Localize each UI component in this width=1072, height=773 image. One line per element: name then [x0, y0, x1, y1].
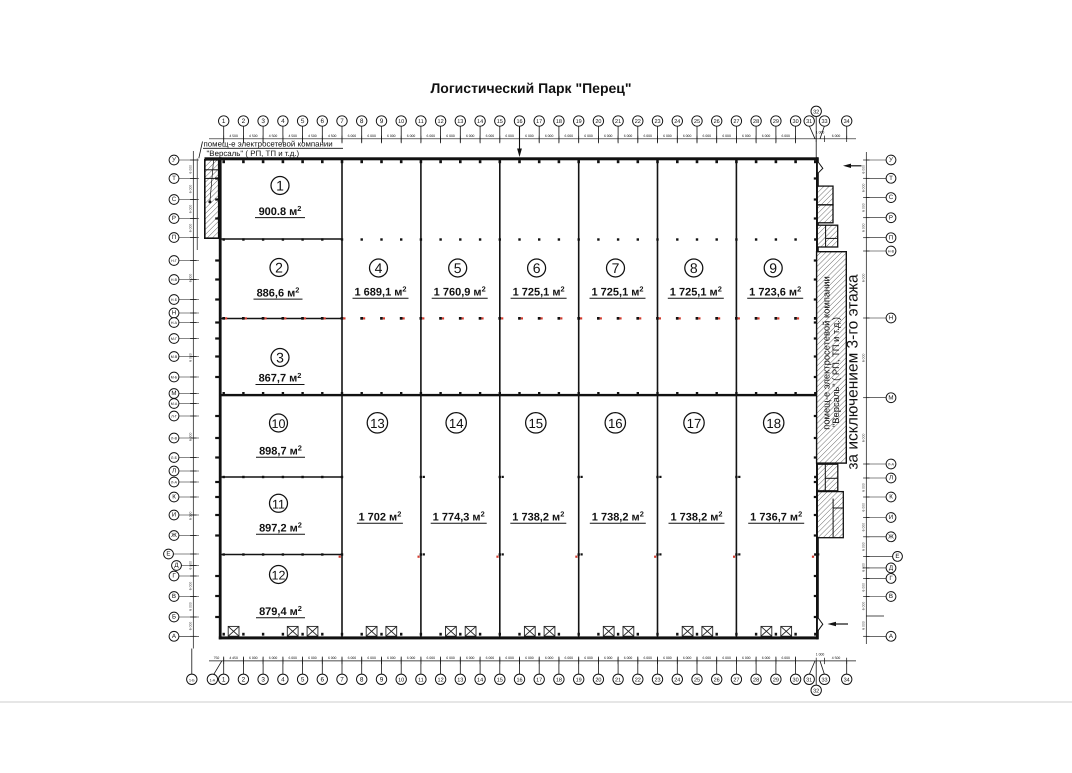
svg-text:7: 7	[612, 260, 620, 276]
svg-text:Л-Б: Л-Б	[171, 456, 178, 460]
svg-text:11: 11	[418, 677, 424, 683]
svg-text:6 000: 6 000	[683, 656, 692, 660]
svg-text:24: 24	[674, 677, 680, 683]
svg-text:6 000: 6 000	[188, 274, 192, 283]
svg-text:1 736,7 м2: 1 736,7 м2	[750, 510, 802, 524]
svg-text:6 000: 6 000	[861, 523, 865, 532]
svg-text:9: 9	[380, 676, 384, 683]
svg-text:6 000: 6 000	[505, 656, 514, 660]
svg-text:14: 14	[477, 677, 483, 683]
svg-text:6 000: 6 000	[762, 656, 771, 660]
svg-text:30: 30	[793, 119, 799, 125]
svg-text:7: 7	[340, 118, 344, 125]
svg-text:4 500: 4 500	[832, 656, 841, 660]
svg-text:1 725,1 м2: 1 725,1 м2	[513, 285, 565, 299]
svg-text:3: 3	[261, 676, 265, 683]
svg-text:1 738,2 м2: 1 738,2 м2	[592, 510, 644, 524]
svg-text:1 725,1 м2: 1 725,1 м2	[591, 285, 643, 299]
svg-text:6 000: 6 000	[188, 185, 192, 194]
svg-text:13: 13	[457, 677, 463, 683]
svg-text:1 702 м2: 1 702 м2	[358, 510, 401, 524]
svg-text:10: 10	[272, 417, 286, 431]
svg-text:879,4 м2: 879,4 м2	[259, 604, 302, 618]
svg-text:5: 5	[454, 260, 462, 276]
svg-text:27: 27	[733, 677, 739, 683]
svg-text:В: В	[172, 593, 176, 600]
svg-text:10: 10	[398, 119, 404, 125]
svg-text:6 000: 6 000	[683, 134, 692, 138]
svg-text:Е: Е	[895, 553, 899, 560]
svg-text:"Версаль" ( РП, ТП и т.д.): "Версаль" ( РП, ТП и т.д.)	[207, 149, 300, 158]
svg-text:30: 30	[793, 677, 799, 683]
svg-text:И: И	[889, 514, 893, 521]
svg-text:6 000: 6 000	[624, 134, 633, 138]
svg-text:14: 14	[449, 416, 464, 431]
svg-text:24: 24	[674, 119, 680, 125]
svg-text:6 000: 6 000	[643, 134, 652, 138]
svg-text:Ж: Ж	[171, 532, 177, 539]
svg-text:19: 19	[576, 119, 582, 125]
svg-text:6 000: 6 000	[466, 656, 475, 660]
svg-text:6 000: 6 000	[861, 203, 865, 212]
svg-text:32: 32	[813, 688, 819, 694]
svg-text:750: 750	[214, 656, 220, 660]
svg-text:помещ-е электросетевой компани: помещ-е электросетевой компании	[204, 140, 333, 149]
svg-text:6 000: 6 000	[525, 134, 534, 138]
svg-text:6: 6	[533, 260, 541, 276]
svg-text:1 725,1 м2: 1 725,1 м2	[670, 285, 722, 299]
svg-text:6 000: 6 000	[407, 656, 416, 660]
svg-text:29: 29	[773, 119, 779, 125]
svg-text:33: 33	[821, 677, 827, 683]
svg-text:6 000: 6 000	[565, 656, 574, 660]
svg-text:4 500: 4 500	[328, 134, 337, 138]
svg-text:5: 5	[301, 118, 305, 125]
svg-text:6 000: 6 000	[427, 656, 436, 660]
svg-text:6 000: 6 000	[584, 656, 593, 660]
svg-text:4 450: 4 450	[229, 656, 238, 660]
svg-text:6 000: 6 000	[407, 134, 416, 138]
svg-text:П: П	[172, 234, 176, 241]
svg-text:6 000: 6 000	[604, 656, 613, 660]
svg-text:за исключением 3-го этажа: за исключением 3-го этажа	[845, 274, 862, 470]
svg-text:Л-А: Л-А	[171, 481, 178, 485]
svg-text:Б: Б	[172, 614, 176, 621]
svg-text:1-А: 1-А	[210, 678, 216, 682]
svg-text:1 738,2 м2: 1 738,2 м2	[670, 510, 722, 524]
svg-text:867,7 м2: 867,7 м2	[259, 371, 302, 385]
svg-text:32: 32	[813, 109, 819, 115]
svg-text:6 000: 6 000	[505, 134, 514, 138]
svg-text:У: У	[172, 157, 176, 164]
svg-text:6 000: 6 000	[188, 511, 192, 520]
svg-text:Н-А: Н-А	[171, 321, 178, 325]
svg-text:Т: Т	[889, 175, 893, 182]
svg-text:10: 10	[398, 677, 404, 683]
svg-text:4: 4	[281, 118, 285, 125]
svg-text:Ж: Ж	[888, 533, 894, 540]
svg-text:6 000: 6 000	[188, 582, 192, 591]
svg-text:12: 12	[438, 677, 444, 683]
svg-text:28: 28	[753, 677, 759, 683]
svg-text:Р: Р	[889, 214, 893, 221]
svg-text:31: 31	[806, 119, 812, 125]
svg-text:13: 13	[457, 119, 463, 125]
svg-text:18: 18	[556, 119, 562, 125]
svg-text:4 500: 4 500	[288, 134, 297, 138]
svg-text:6 000: 6 000	[466, 134, 475, 138]
svg-text:Логистический Парк "Перец": Логистический Парк "Перец"	[430, 80, 631, 96]
svg-text:17: 17	[536, 677, 542, 683]
svg-text:16: 16	[516, 677, 522, 683]
svg-text:897,2 м2: 897,2 м2	[259, 521, 302, 535]
svg-text:М-Г: М-Г	[171, 337, 177, 341]
svg-text:6 000: 6 000	[861, 165, 865, 174]
svg-text:6 000: 6 000	[861, 621, 865, 630]
svg-text:6 000: 6 000	[722, 134, 731, 138]
svg-text:Р: Р	[172, 215, 176, 222]
svg-text:6 000: 6 000	[861, 274, 865, 283]
svg-text:П: П	[889, 234, 893, 241]
svg-text:26: 26	[714, 677, 720, 683]
svg-text:15: 15	[497, 119, 503, 125]
svg-text:15: 15	[528, 416, 543, 431]
svg-text:4 500: 4 500	[249, 134, 258, 138]
svg-text:28: 28	[753, 119, 759, 125]
svg-text:15: 15	[497, 677, 503, 683]
svg-text:18: 18	[556, 677, 562, 683]
svg-text:18: 18	[766, 416, 781, 431]
svg-text:29: 29	[773, 677, 779, 683]
svg-text:6 000: 6 000	[742, 656, 751, 660]
svg-text:Н: Н	[889, 315, 893, 322]
svg-text:8: 8	[360, 118, 364, 125]
svg-text:13: 13	[370, 416, 385, 431]
svg-text:20: 20	[595, 677, 601, 683]
svg-text:16: 16	[516, 119, 522, 125]
svg-text:Л: Л	[889, 475, 893, 482]
svg-text:6 000: 6 000	[861, 434, 865, 443]
svg-text:6 000: 6 000	[188, 224, 192, 233]
svg-text:6 000: 6 000	[545, 656, 554, 660]
svg-text:К: К	[889, 494, 893, 501]
svg-text:886,6 м2: 886,6 м2	[257, 286, 300, 300]
svg-text:6 000: 6 000	[861, 583, 865, 592]
svg-text:6 000: 6 000	[188, 165, 192, 174]
svg-text:"Версаль" ( РП, ТП и т.д.): "Версаль" ( РП, ТП и т.д.)	[830, 317, 841, 427]
svg-text:В: В	[889, 593, 893, 600]
svg-text:8: 8	[360, 676, 364, 683]
svg-text:898,7 м2: 898,7 м2	[259, 444, 302, 458]
svg-text:25: 25	[694, 119, 700, 125]
svg-text:И: И	[172, 512, 176, 519]
svg-text:5: 5	[301, 676, 305, 683]
svg-text:26: 26	[714, 119, 720, 125]
svg-text:6 000: 6 000	[861, 602, 865, 611]
svg-text:2: 2	[275, 260, 283, 276]
svg-text:23: 23	[654, 677, 660, 683]
svg-text:25: 25	[694, 677, 700, 683]
svg-text:Л-А: Л-А	[888, 463, 895, 467]
svg-text:6 000: 6 000	[861, 483, 865, 492]
svg-text:4 500: 4 500	[229, 134, 238, 138]
svg-text:4: 4	[281, 676, 285, 683]
svg-text:1-Б: 1-Б	[189, 678, 195, 682]
svg-text:С: С	[889, 194, 894, 201]
svg-text:Т: Т	[172, 175, 176, 182]
svg-text:6 000: 6 000	[525, 656, 534, 660]
svg-text:6 000: 6 000	[861, 563, 865, 572]
svg-text:8: 8	[690, 260, 698, 276]
svg-text:М-А: М-А	[171, 402, 178, 406]
svg-text:31: 31	[806, 677, 812, 683]
svg-text:11: 11	[272, 497, 285, 511]
svg-text:6 000: 6 000	[328, 656, 337, 660]
svg-text:6 000: 6 000	[348, 656, 357, 660]
svg-text:М-В: М-В	[171, 355, 178, 359]
svg-text:14: 14	[477, 119, 483, 125]
svg-text:17: 17	[536, 119, 542, 125]
svg-text:6 000: 6 000	[446, 134, 455, 138]
svg-text:6 000: 6 000	[781, 134, 790, 138]
svg-text:Н-Б: Н-Б	[171, 298, 178, 302]
svg-text:12: 12	[272, 569, 286, 583]
svg-text:Н-Г: Н-Г	[171, 259, 177, 263]
svg-text:1: 1	[276, 178, 284, 194]
svg-text:6 000: 6 000	[781, 656, 790, 660]
svg-text:К: К	[172, 494, 176, 501]
svg-text:22: 22	[635, 677, 641, 683]
svg-text:6 000: 6 000	[703, 134, 712, 138]
svg-text:6 000: 6 000	[832, 134, 841, 138]
svg-text:С: С	[172, 196, 177, 203]
svg-text:27: 27	[733, 119, 739, 125]
svg-text:Н-В: Н-В	[888, 250, 895, 254]
svg-text:23: 23	[654, 119, 660, 125]
svg-text:1: 1	[222, 676, 226, 683]
svg-text:3: 3	[276, 350, 284, 366]
svg-text:6 000: 6 000	[188, 205, 192, 214]
svg-text:4 500: 4 500	[308, 134, 317, 138]
svg-text:22: 22	[635, 119, 641, 125]
svg-text:6 000: 6 000	[861, 354, 865, 363]
svg-text:6 000: 6 000	[367, 656, 376, 660]
svg-text:6 000: 6 000	[249, 656, 258, 660]
svg-text:4 500: 4 500	[269, 134, 278, 138]
svg-text:6 000: 6 000	[446, 656, 455, 660]
svg-text:6 000: 6 000	[545, 134, 554, 138]
svg-text:6: 6	[321, 676, 325, 683]
svg-text:1 760,9 м2: 1 760,9 м2	[434, 285, 486, 299]
svg-text:1: 1	[222, 118, 226, 125]
svg-text:1 738,2 м2: 1 738,2 м2	[512, 510, 564, 524]
svg-text:Л-В: Л-В	[171, 437, 178, 441]
svg-text:3: 3	[261, 118, 265, 125]
svg-text:1 000: 1 000	[816, 653, 825, 657]
svg-text:6 000: 6 000	[722, 656, 731, 660]
svg-text:6 000: 6 000	[703, 656, 712, 660]
svg-text:1 723,6 м2: 1 723,6 м2	[749, 285, 801, 299]
svg-text:6 000: 6 000	[387, 134, 396, 138]
svg-text:6 000: 6 000	[188, 602, 192, 611]
svg-text:6 000: 6 000	[663, 656, 672, 660]
svg-text:6 000: 6 000	[367, 134, 376, 138]
svg-text:6 000: 6 000	[188, 622, 192, 631]
svg-text:2: 2	[242, 676, 246, 683]
svg-text:2: 2	[242, 118, 246, 125]
svg-text:Л: Л	[172, 468, 176, 475]
svg-text:М: М	[888, 394, 893, 401]
svg-text:6 000: 6 000	[861, 503, 865, 512]
svg-text:7: 7	[340, 676, 344, 683]
svg-text:Л-Г: Л-Г	[171, 415, 177, 419]
svg-text:6 000: 6 000	[288, 656, 297, 660]
svg-text:6 000: 6 000	[188, 561, 192, 570]
svg-text:16: 16	[608, 416, 623, 431]
svg-text:17: 17	[687, 416, 702, 431]
svg-text:6 000: 6 000	[427, 134, 436, 138]
svg-text:Н-В: Н-В	[171, 278, 178, 282]
svg-text:6 000: 6 000	[565, 134, 574, 138]
svg-text:6 000: 6 000	[624, 656, 633, 660]
svg-text:6 000: 6 000	[486, 656, 495, 660]
svg-text:6 000: 6 000	[742, 134, 751, 138]
svg-text:М-Б: М-Б	[171, 376, 178, 380]
svg-text:6 000: 6 000	[348, 134, 357, 138]
svg-text:6 000: 6 000	[188, 432, 192, 441]
svg-text:12: 12	[438, 119, 444, 125]
svg-text:19: 19	[576, 677, 582, 683]
svg-text:Е: Е	[166, 551, 170, 558]
svg-text:6 000: 6 000	[762, 134, 771, 138]
svg-text:6 000: 6 000	[643, 656, 652, 660]
svg-text:6 000: 6 000	[387, 656, 396, 660]
svg-text:6 000: 6 000	[861, 184, 865, 193]
svg-text:Н: Н	[172, 310, 176, 317]
svg-text:4: 4	[375, 260, 383, 276]
svg-text:900.8 м2: 900.8 м2	[259, 204, 302, 218]
svg-text:6 000: 6 000	[188, 353, 192, 362]
svg-text:21: 21	[615, 677, 621, 683]
svg-text:6 000: 6 000	[486, 134, 495, 138]
svg-text:6 000: 6 000	[269, 656, 278, 660]
svg-text:У: У	[889, 157, 893, 164]
svg-text:21: 21	[615, 119, 621, 125]
svg-text:6 000: 6 000	[308, 656, 317, 660]
svg-text:6 000: 6 000	[663, 134, 672, 138]
svg-text:33: 33	[821, 119, 827, 125]
svg-text:9: 9	[380, 118, 384, 125]
svg-text:6 000: 6 000	[604, 134, 613, 138]
svg-text:34: 34	[844, 677, 850, 683]
svg-text:6 000: 6 000	[861, 223, 865, 232]
svg-text:6 000: 6 000	[584, 134, 593, 138]
svg-text:6 000: 6 000	[861, 542, 865, 551]
svg-text:20: 20	[595, 119, 601, 125]
svg-text:6: 6	[321, 118, 325, 125]
svg-text:11: 11	[418, 119, 424, 125]
svg-text:М: М	[171, 390, 176, 397]
svg-text:1 689,1 м2: 1 689,1 м2	[354, 285, 406, 299]
svg-text:34: 34	[844, 119, 850, 125]
svg-text:9: 9	[769, 260, 777, 276]
svg-text:1 774,3 м2: 1 774,3 м2	[433, 510, 485, 524]
